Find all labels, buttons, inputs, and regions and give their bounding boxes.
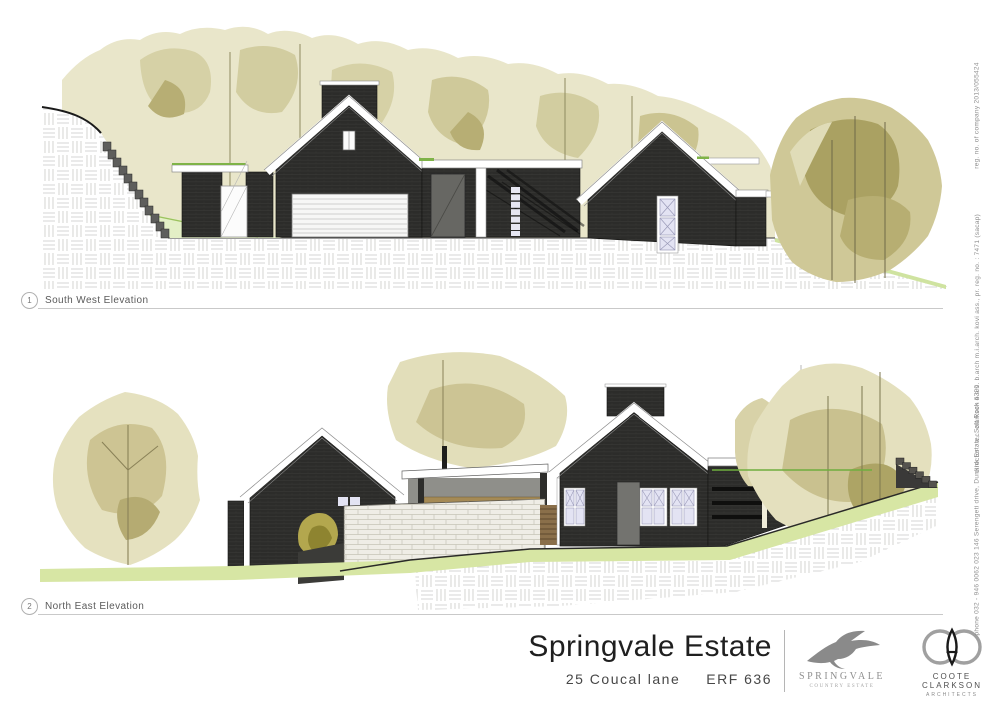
link-door bbox=[431, 174, 465, 237]
springvale-logo-name: SPRINGVALE bbox=[792, 671, 892, 682]
garage-door bbox=[292, 194, 408, 237]
project-title: Springvale Estate bbox=[528, 630, 772, 664]
title-block-divider bbox=[784, 630, 785, 692]
elevation-title: South West Elevation bbox=[45, 295, 148, 306]
erf-number: ERF 636 bbox=[706, 671, 772, 687]
elevation-number-badge: 2 bbox=[21, 598, 38, 615]
project-address: 25 Coucal laneERF 636 bbox=[528, 671, 772, 687]
label-underline-2 bbox=[38, 614, 943, 615]
address-text: 25 Coucal lane bbox=[566, 671, 680, 687]
margin-note-contact: phone 032 - 946 0062 023 146 Serengeti d… bbox=[974, 406, 981, 636]
project-info: Springvale Estate 25 Coucal laneERF 636 bbox=[528, 630, 772, 687]
house-right-gable bbox=[549, 384, 719, 546]
coote-clarkson-logo-subtitle: ARCHITECTS bbox=[902, 692, 1000, 698]
gable-window bbox=[343, 131, 355, 150]
foreground-tree-right bbox=[770, 98, 942, 283]
elevation-title: North East Elevation bbox=[45, 601, 144, 612]
door-right-house bbox=[617, 482, 640, 545]
margin-note-company-reg: reg. no. of company 2013/055424 bbox=[974, 56, 981, 176]
elevation-label-2: 2 North East Elevation bbox=[21, 598, 144, 615]
north-east-elevation-drawing bbox=[40, 352, 938, 610]
elevation-drawings bbox=[0, 0, 1000, 707]
tall-window bbox=[657, 196, 678, 253]
south-west-elevation-drawing bbox=[42, 27, 946, 289]
label-underline-1 bbox=[38, 308, 943, 309]
drawing-sheet: 1 South West Elevation 2 North East Elev… bbox=[0, 0, 1000, 707]
springvale-estate-logo: SPRINGVALE COUNTRY ESTATE bbox=[792, 628, 892, 689]
eagle-icon bbox=[803, 628, 881, 670]
elevation-label-1: 1 South West Elevation bbox=[21, 292, 148, 309]
springvale-logo-subtitle: COUNTRY ESTATE bbox=[792, 684, 892, 689]
coote-clarkson-logo: COOTE CLARKSON ARCHITECTS bbox=[902, 626, 1000, 698]
coote-clarkson-logo-name: COOTE CLARKSON bbox=[902, 672, 1000, 690]
title-block: Springvale Estate 25 Coucal laneERF 636 … bbox=[520, 626, 990, 701]
elevation-number-badge: 1 bbox=[21, 292, 38, 309]
